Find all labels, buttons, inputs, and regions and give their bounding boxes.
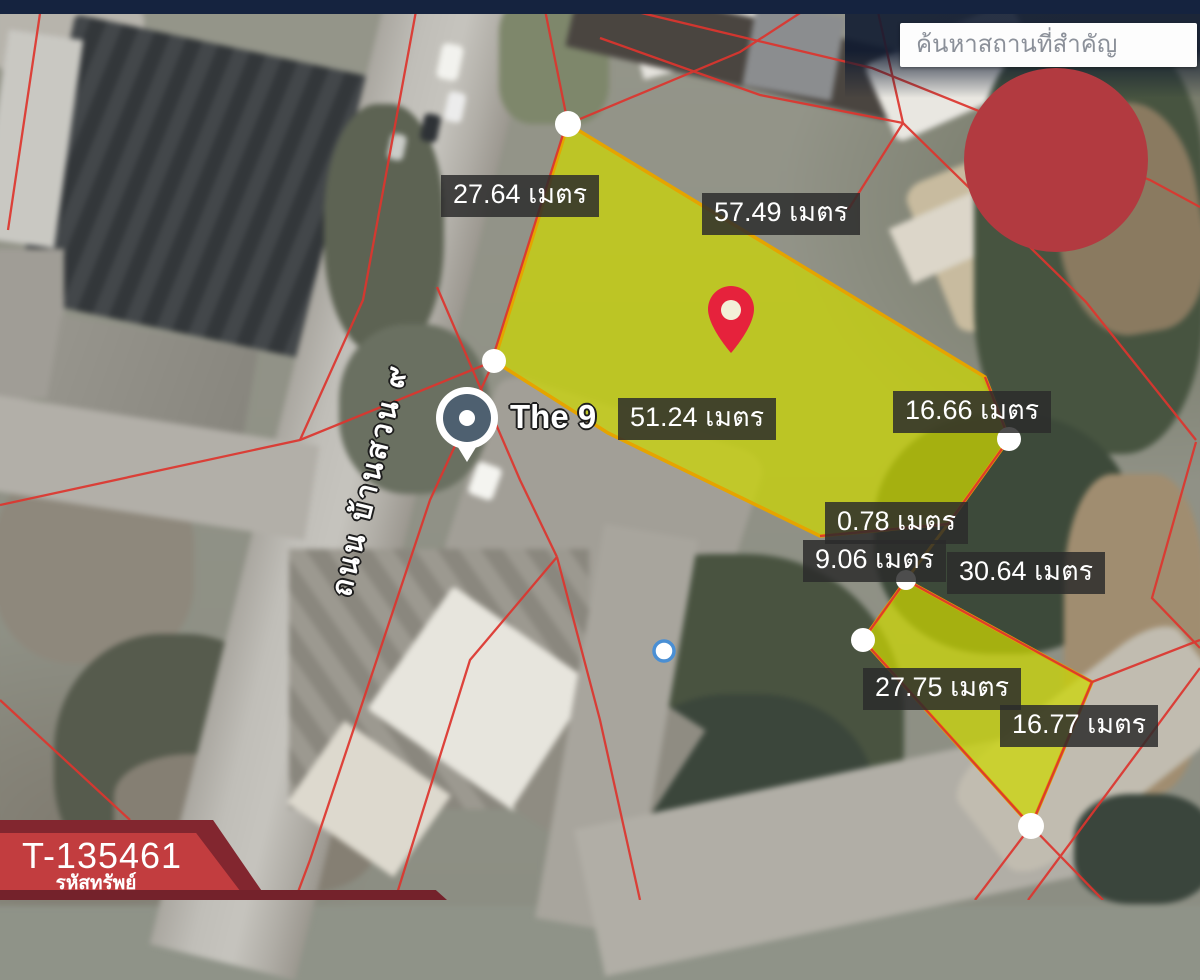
brand-logo [0,0,1200,900]
brand-logo-circle [964,68,1148,252]
property-code-caption: รหัสทรัพย์ [20,868,172,898]
map-screenshot: { "topbar": { "search_placeholder": "ค้น… [0,0,1200,900]
